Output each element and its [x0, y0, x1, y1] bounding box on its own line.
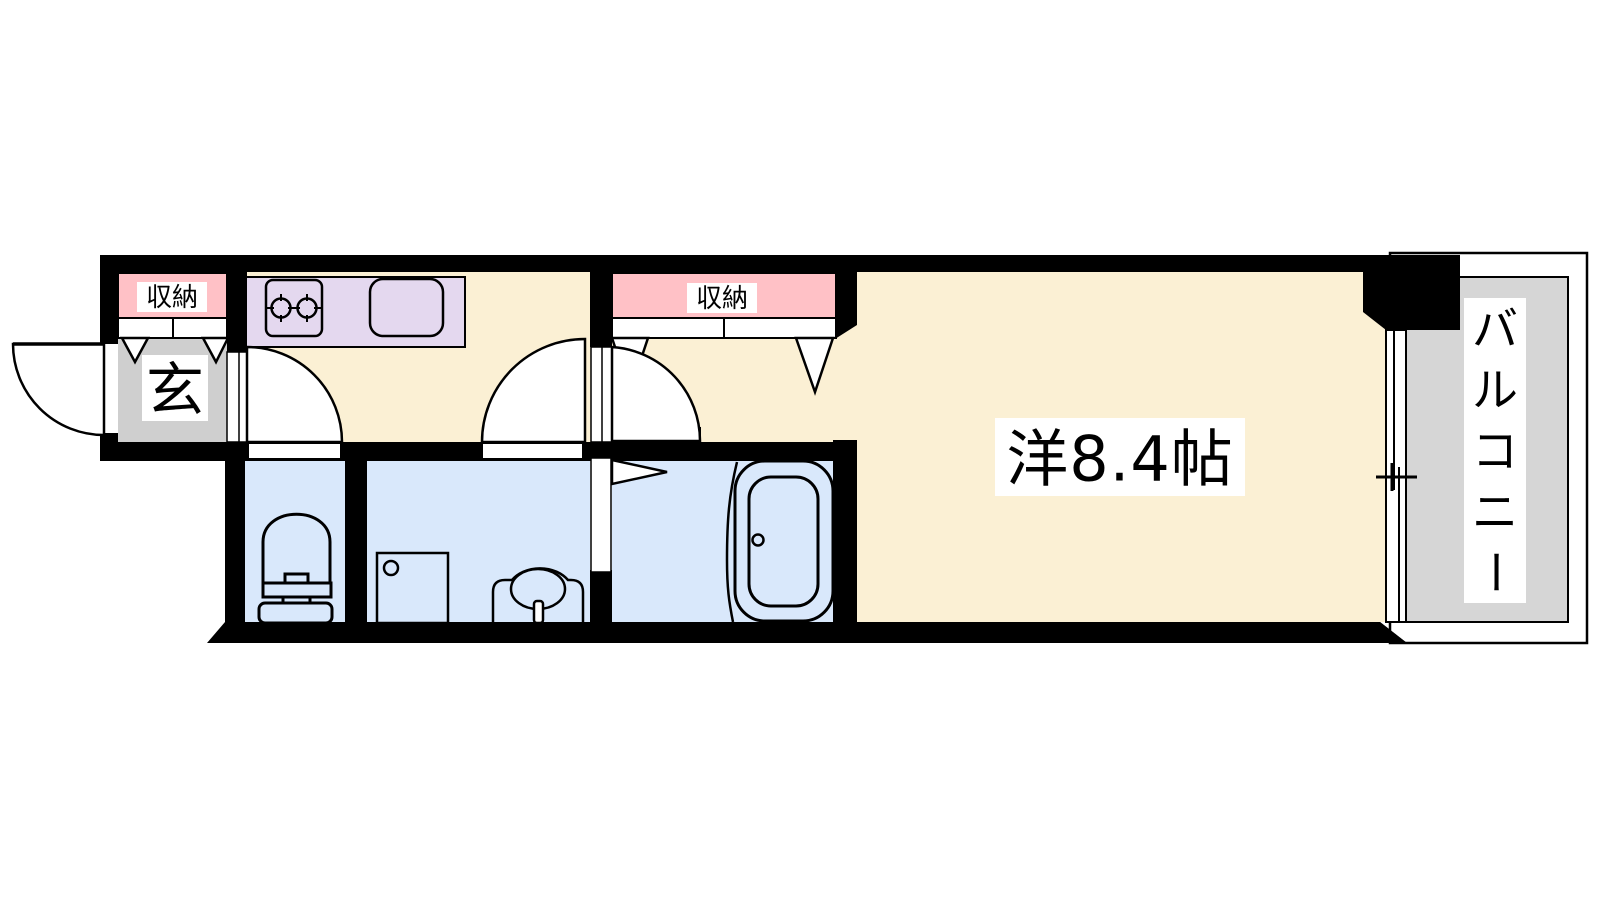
entrance-storage-door-left	[118, 318, 173, 338]
washroom-floor	[367, 460, 590, 623]
balcony-label-char-5: ー	[1468, 549, 1522, 595]
bathroom-floor	[612, 458, 833, 623]
wall-toilet-washroom	[345, 460, 367, 623]
wall-corner-top-right	[1363, 255, 1460, 330]
wall-bathroom-right	[833, 440, 857, 623]
entrance-storage-door-right	[173, 318, 227, 338]
balcony-label-char-2: ル	[1472, 363, 1518, 417]
toilet-doorway	[248, 443, 341, 459]
entrance-label: 玄	[146, 356, 204, 424]
hall-storage-label: 収納	[696, 284, 748, 314]
floor-plan-page: バ ル コ ニ ー	[0, 0, 1600, 900]
wall-toilet-left	[225, 460, 245, 623]
floor-plan-svg: バ ル コ ニ ー	[0, 0, 1600, 900]
wall-entrance-right	[227, 272, 247, 352]
wet-rooms	[245, 458, 833, 623]
bathroom-doorway	[591, 458, 611, 572]
kitchen-sink-icon	[370, 279, 443, 336]
main-room-label: 洋8.4帖	[1006, 423, 1234, 496]
hall-main-opening-floor	[830, 330, 870, 442]
wall-washroom-bathroom	[590, 570, 612, 623]
entrance-passage	[227, 352, 247, 442]
wall-corridor-hall	[590, 272, 612, 347]
kitchen-counter	[245, 277, 465, 347]
wall-left-upper	[100, 255, 118, 344]
wall-top	[100, 255, 1460, 272]
hall-storage-door-left	[612, 318, 724, 338]
entrance-door-swing	[13, 344, 104, 435]
balcony-label-char-3: コ	[1472, 424, 1518, 478]
entrance-storage-label: 収納	[146, 283, 198, 313]
washroom-doorway	[482, 443, 583, 459]
wall-corridor-bottom	[100, 442, 857, 461]
wall-bottom	[207, 622, 1407, 643]
hall-storage-door-right	[724, 318, 836, 338]
balcony-label-char-1: バ	[1472, 302, 1518, 356]
balcony-label-char-4: ニ	[1472, 485, 1518, 539]
